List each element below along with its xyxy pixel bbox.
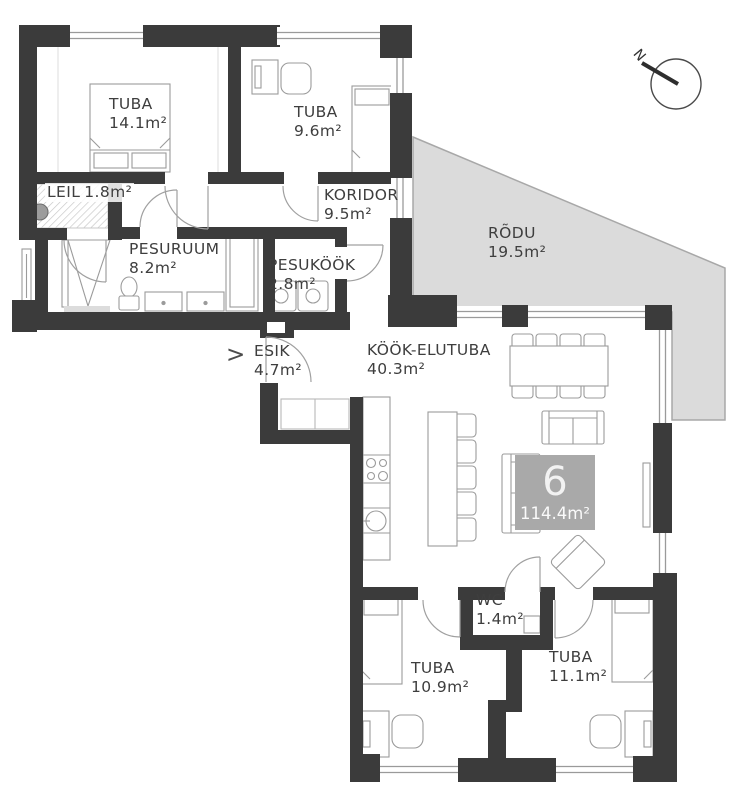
room-label-tuba-2: TUBA9.6m² xyxy=(294,103,342,141)
window xyxy=(457,306,502,324)
hallway-furniture xyxy=(281,399,349,429)
room-label-tuba-4: TUBA11.1m² xyxy=(549,648,607,686)
chair-icon xyxy=(281,63,311,94)
window xyxy=(391,58,411,93)
shower-icon xyxy=(68,240,110,306)
pillow-icon xyxy=(94,153,128,168)
room-label-pesukook: PESUKÖÖK2.8m² xyxy=(268,256,355,294)
unit-total-area: 114.4m² xyxy=(520,506,590,523)
kitchen-furniture xyxy=(363,397,476,560)
window xyxy=(528,306,645,324)
room-label-rodu: RÕDU19.5m² xyxy=(488,224,546,262)
window xyxy=(70,27,143,45)
door xyxy=(283,186,318,221)
desk-item xyxy=(255,66,261,88)
armchair-body xyxy=(550,534,607,591)
desk-item xyxy=(644,721,651,747)
kitchen-counter-icon xyxy=(363,397,390,560)
door xyxy=(555,600,593,638)
window xyxy=(654,533,671,573)
compass: N xyxy=(630,46,701,109)
compass-north-label: N xyxy=(630,46,649,64)
door xyxy=(505,557,540,592)
window xyxy=(277,27,380,45)
room-label-tuba-3: TUBA10.9m² xyxy=(411,659,469,697)
room-label-koridor: KORIDOR9.5m² xyxy=(324,186,399,224)
tv-icon xyxy=(643,463,650,527)
room-label-esik: ESIK4.7m² xyxy=(254,342,302,380)
dining-table-icon xyxy=(510,346,608,386)
drain xyxy=(162,301,165,304)
toilet-tank xyxy=(119,296,139,310)
pillow-icon xyxy=(132,153,166,168)
room-label-kook-elutuba: KÖÖK-ELUTUBA40.3m² xyxy=(367,341,491,379)
shower-tray xyxy=(64,306,110,312)
room-label-tuba-1: TUBA14.1m² xyxy=(109,95,167,133)
armchair-icon xyxy=(550,534,607,591)
pillow-icon xyxy=(364,598,398,615)
shaft-opening xyxy=(267,322,285,333)
toilet-icon xyxy=(121,277,137,297)
wc-sink-icon xyxy=(524,616,540,633)
compass-needle xyxy=(642,63,678,84)
window xyxy=(556,761,633,779)
pillow-icon xyxy=(355,89,389,105)
door xyxy=(165,186,208,229)
drain xyxy=(204,301,207,304)
room-label-leil: LEIL1.8m² xyxy=(45,183,134,202)
cabinet-inner xyxy=(230,237,254,307)
room-label-pesuruum: PESURUUM8.2m² xyxy=(129,240,219,278)
window xyxy=(380,761,458,779)
unit-number: 6 xyxy=(542,462,567,502)
kitchen-island-icon xyxy=(428,412,457,546)
chair-icon xyxy=(392,715,423,748)
floor-plan: N TUBA14.1m² TUBA9.6m² LEIL1.8m² KORIDOR… xyxy=(0,0,747,800)
room-label-wc: WC1.4m² xyxy=(476,591,524,629)
chair-icon xyxy=(590,715,621,748)
entry-direction-marker: > xyxy=(226,344,245,367)
dining-furniture xyxy=(510,334,608,398)
unit-badge: 6 114.4m² xyxy=(515,455,595,530)
desk-item xyxy=(363,721,370,747)
balcony-door-window xyxy=(654,330,671,423)
door xyxy=(423,600,460,637)
